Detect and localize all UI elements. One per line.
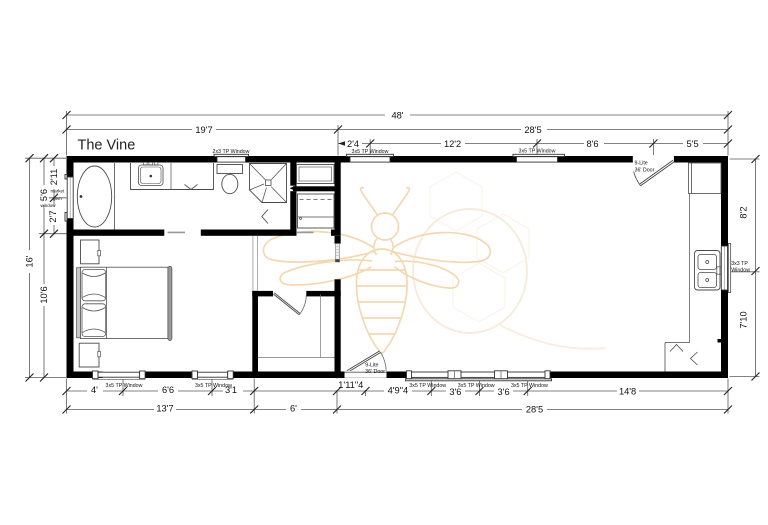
svg-text:28'5: 28'5 — [524, 125, 541, 135]
svg-text:10'6: 10'6 — [39, 286, 49, 303]
svg-text:28'5: 28'5 — [526, 405, 543, 415]
svg-text:gem: gem — [53, 196, 62, 201]
svg-text:3x5 TP Window: 3x5 TP Window — [511, 383, 548, 389]
svg-text:13'7: 13'7 — [156, 403, 173, 413]
svg-text:12'2: 12'2 — [444, 139, 461, 149]
svg-text:The Vine: The Vine — [78, 138, 136, 154]
svg-text:9-Lite: 9-Lite — [365, 362, 378, 368]
svg-text:3x5 TP Window: 3x5 TP Window — [458, 383, 495, 389]
svg-text:3x3 TP: 3x3 TP — [731, 261, 748, 267]
svg-text:4': 4' — [91, 385, 98, 395]
svg-text:5'5: 5'5 — [687, 139, 699, 149]
svg-text:2'11: 2'11 — [49, 169, 59, 186]
svg-text:48': 48' — [391, 110, 403, 120]
svg-text:9-Lite: 9-Lite — [635, 160, 648, 166]
svg-text:3x5 TP Window: 3x5 TP Window — [106, 383, 143, 389]
svg-text:1'11"4: 1'11"4 — [338, 380, 363, 390]
svg-text:16': 16' — [25, 255, 35, 267]
svg-text:market: market — [51, 189, 66, 194]
svg-text:3x5 TP Window: 3x5 TP Window — [409, 383, 446, 389]
svg-text:6': 6' — [290, 403, 297, 413]
svg-text:8'2: 8'2 — [739, 206, 749, 218]
svg-text:8'6: 8'6 — [586, 139, 598, 149]
svg-text:2'4: 2'4 — [347, 139, 359, 149]
svg-text:4'9"4: 4'9"4 — [388, 386, 409, 396]
svg-text:6'6: 6'6 — [162, 385, 174, 395]
svg-text:36' Door: 36' Door — [365, 369, 385, 375]
svg-text:14'8: 14'8 — [619, 386, 636, 396]
svg-text:36' Door: 36' Door — [635, 167, 655, 173]
svg-text:19'7: 19'7 — [195, 125, 212, 135]
svg-text:2'7: 2'7 — [48, 210, 58, 222]
svg-text:7'10: 7'10 — [739, 311, 749, 328]
svg-text:5'6: 5'6 — [39, 189, 49, 201]
svg-text:3'6: 3'6 — [498, 387, 510, 397]
svg-text:window: window — [41, 203, 57, 208]
svg-text:3x5 TP Window: 3x5 TP Window — [195, 383, 232, 389]
svg-text:Window: Window — [731, 268, 750, 274]
svg-text:3x5 TP Window: 3x5 TP Window — [519, 149, 556, 155]
